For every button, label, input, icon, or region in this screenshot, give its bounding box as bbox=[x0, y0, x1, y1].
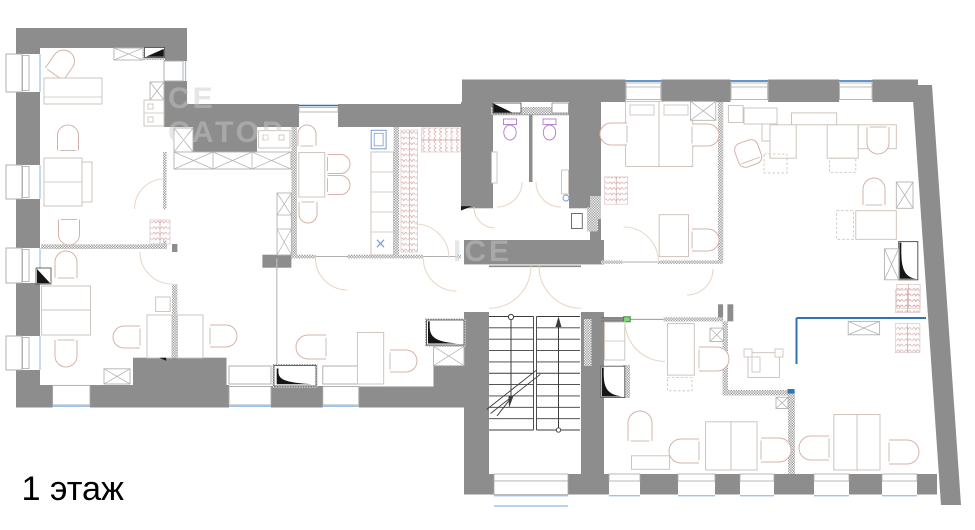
svg-text:1 этаж: 1 этаж bbox=[22, 470, 124, 508]
svg-text:IСЕ: IСЕ bbox=[453, 235, 512, 268]
svg-text:СЕ: СЕ bbox=[168, 82, 216, 115]
svg-text:САТОР: САТОР bbox=[168, 116, 285, 149]
